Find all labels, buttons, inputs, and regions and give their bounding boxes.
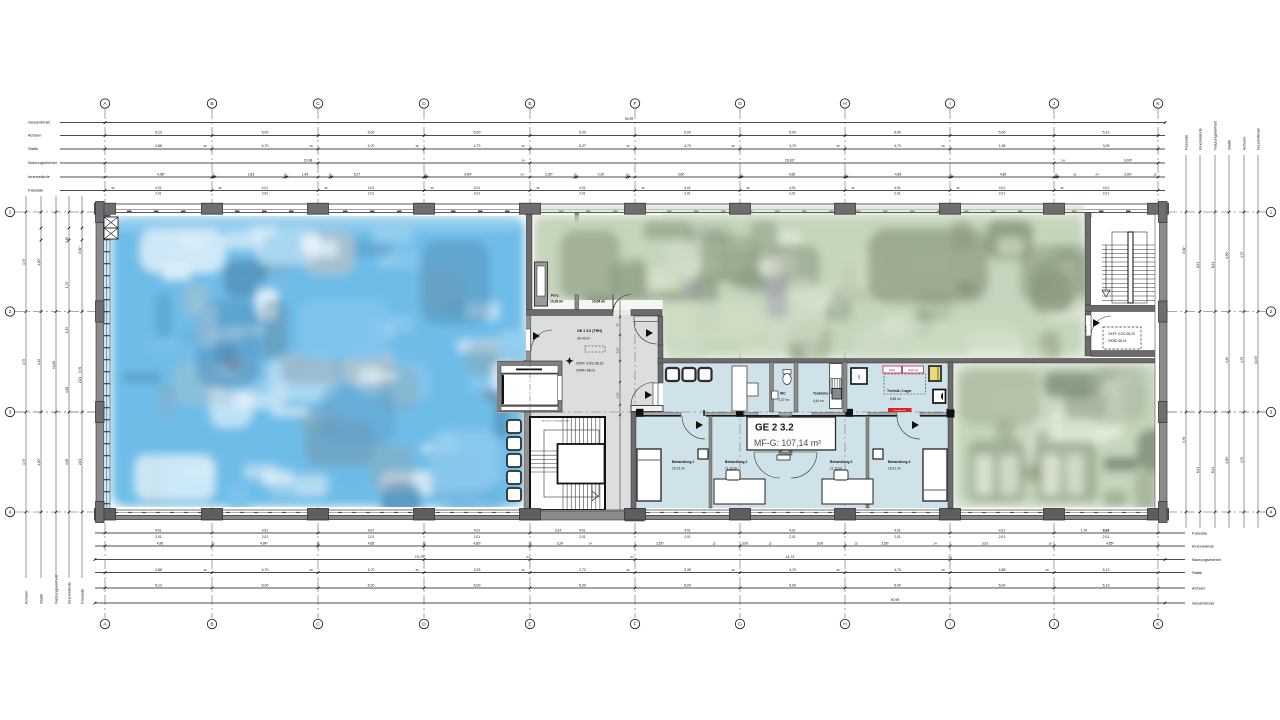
svg-text:D: D: [422, 622, 426, 628]
svg-text:4,45: 4,45: [37, 359, 41, 365]
svg-text:4,85⁵: 4,85⁵: [1106, 541, 1114, 545]
svg-text:14,73: 14,73: [786, 555, 795, 559]
svg-text:4,50⁵: 4,50⁵: [1225, 456, 1229, 464]
svg-text:4,70: 4,70: [368, 568, 375, 572]
svg-text:6,91: 6,91: [1196, 262, 1200, 268]
svg-text:3,05: 3,05: [1103, 144, 1110, 148]
svg-text:19,98: 19,98: [304, 158, 313, 162]
svg-text:E: E: [528, 622, 531, 628]
svg-text:4,85: 4,85: [1000, 172, 1007, 176]
svg-text:4,18: 4,18: [65, 387, 69, 393]
svg-text:4,85⁵: 4,85⁵: [473, 541, 481, 545]
svg-text:5,00: 5,00: [789, 131, 796, 135]
svg-text:4,01: 4,01: [155, 186, 162, 190]
svg-text:15: 15: [712, 541, 716, 545]
svg-text:MF-G: 107,14 m²: MF-G: 107,14 m²: [754, 438, 821, 448]
svg-text:Fassade: Fassade: [1192, 530, 1208, 535]
svg-text:Statik: Statik: [1226, 140, 1231, 150]
svg-text:B: B: [210, 101, 213, 107]
svg-text:4,79: 4,79: [22, 259, 26, 265]
svg-text:1,45: 1,45: [302, 172, 309, 176]
svg-text:D: D: [422, 101, 426, 107]
svg-text:2,01: 2,01: [894, 535, 901, 539]
svg-text:15: 15: [1048, 541, 1052, 545]
svg-text:30: 30: [309, 144, 313, 148]
svg-text:3,00: 3,00: [742, 541, 749, 545]
svg-text:30: 30: [521, 568, 525, 572]
svg-text:2,01: 2,01: [1103, 192, 1110, 196]
svg-text:4,85: 4,85: [895, 172, 902, 176]
svg-text:8,48 m²: 8,48 m²: [890, 397, 901, 401]
svg-text:C: C: [316, 622, 320, 628]
svg-text:3,24: 3,24: [557, 541, 564, 545]
svg-text:1: 1: [1270, 210, 1273, 216]
svg-text:1,76: 1,76: [1081, 528, 1088, 532]
svg-text:5,00: 5,00: [684, 131, 691, 135]
svg-text:4,50⁵: 4,50⁵: [37, 458, 41, 466]
svg-text:GE 2 3.0 (TRH): GE 2 3.0 (TRH): [577, 329, 603, 333]
svg-text:4,70: 4,70: [262, 568, 269, 572]
svg-text:Pers.: Pers.: [551, 294, 559, 298]
svg-text:1,58: 1,58: [999, 144, 1006, 148]
svg-text:2,83: 2,83: [248, 172, 255, 176]
svg-text:Behandlung 1: Behandlung 1: [672, 460, 695, 464]
svg-text:15: 15: [1153, 172, 1157, 176]
svg-text:2,01: 2,01: [78, 377, 82, 383]
svg-text:F: F: [634, 622, 637, 628]
svg-text:H: H: [843, 101, 847, 107]
svg-text:3,03⁵: 3,03⁵: [1124, 172, 1132, 176]
svg-text:Innenwände: Innenwände: [67, 581, 72, 604]
svg-text:6,91: 6,91: [1211, 262, 1215, 268]
svg-text:1,35: 1,35: [65, 327, 69, 333]
svg-text:11,12 m²: 11,12 m²: [725, 467, 737, 471]
svg-text:4,70: 4,70: [262, 144, 269, 148]
svg-text:24: 24: [588, 541, 592, 545]
svg-text:2,01: 2,01: [684, 535, 691, 539]
svg-text:99: 99: [957, 186, 960, 190]
svg-text:4,01: 4,01: [474, 528, 481, 532]
svg-text:4,96: 4,96: [157, 541, 164, 545]
svg-text:G: G: [738, 622, 742, 628]
svg-text:5,00: 5,00: [999, 583, 1006, 587]
svg-text:99: 99: [537, 186, 540, 190]
svg-text:5,13: 5,13: [1103, 568, 1110, 572]
svg-text:4,50⁵: 4,50⁵: [1225, 251, 1229, 259]
svg-text:Behandlung 2: Behandlung 2: [725, 460, 748, 464]
svg-text:4,70: 4,70: [789, 144, 796, 148]
svg-text:4,01: 4,01: [999, 186, 1006, 190]
svg-text:5,00: 5,00: [579, 583, 586, 587]
svg-text:5,00: 5,00: [684, 583, 691, 587]
svg-text:I: I: [949, 622, 950, 628]
svg-text:I: I: [949, 101, 950, 107]
svg-text:3,60: 3,60: [678, 172, 685, 176]
svg-text:GE 2 3.2: GE 2 3.2: [755, 423, 794, 434]
svg-text:3,76: 3,76: [1182, 437, 1186, 443]
svg-text:4,45: 4,45: [1225, 357, 1229, 363]
svg-text:2,37 m²: 2,37 m²: [779, 398, 790, 402]
svg-text:Nutzungseinheit: Nutzungseinheit: [54, 574, 59, 604]
svg-text:2,01: 2,01: [368, 192, 375, 196]
svg-text:2,30: 2,30: [598, 172, 605, 176]
svg-text:5,00: 5,00: [894, 583, 901, 587]
svg-text:2,72: 2,72: [579, 568, 586, 572]
svg-text:10,54 m²: 10,54 m²: [592, 300, 606, 304]
svg-text:2,01: 2,01: [579, 535, 586, 539]
svg-text:Nutzungseinheit: Nutzungseinheit: [1192, 557, 1222, 562]
svg-text:5,61⁵: 5,61⁵: [1182, 246, 1186, 254]
svg-text:Gesamtmaß: Gesamtmaß: [28, 120, 51, 125]
svg-text:11,12 m²: 11,12 m²: [830, 467, 842, 471]
svg-text:5,00: 5,00: [368, 131, 375, 135]
svg-text:4,70: 4,70: [789, 568, 796, 572]
svg-text:3,91: 3,91: [982, 541, 989, 545]
svg-text:Fassade: Fassade: [28, 188, 44, 193]
svg-text:24: 24: [526, 555, 530, 559]
svg-text:Statik: Statik: [39, 594, 44, 604]
svg-text:15,19 m²: 15,19 m²: [672, 467, 685, 471]
svg-text:4,01: 4,01: [684, 186, 691, 190]
svg-text:30: 30: [626, 568, 630, 572]
svg-text:5,00: 5,00: [368, 583, 375, 587]
svg-text:Heizung: Heizung: [908, 368, 919, 372]
svg-text:Innenwände: Innenwände: [28, 174, 51, 179]
svg-text:Nutzungseinheit: Nutzungseinheit: [28, 160, 58, 165]
svg-text:4,01: 4,01: [368, 186, 375, 190]
svg-text:2,01: 2,01: [1103, 535, 1110, 539]
svg-text:5,13: 5,13: [1103, 131, 1110, 135]
svg-text:2,30⁵: 2,30⁵: [545, 172, 553, 176]
svg-text:30: 30: [203, 568, 207, 572]
svg-text:4,50⁵: 4,50⁵: [37, 258, 41, 266]
svg-text:OKFF 3.OG 68,20: OKFF 3.OG 68,20: [1108, 332, 1135, 336]
svg-text:4,01: 4,01: [789, 528, 796, 532]
svg-text:5,27: 5,27: [354, 172, 361, 176]
svg-text:2,10⁵: 2,10⁵: [616, 347, 620, 353]
svg-text:99: 99: [747, 186, 750, 190]
svg-text:2,01: 2,01: [789, 192, 796, 196]
svg-text:Innenwände: Innenwände: [1192, 543, 1215, 548]
svg-text:5,00: 5,00: [262, 131, 269, 135]
svg-text:3,03⁵: 3,03⁵: [1124, 158, 1133, 162]
svg-text:4,98⁵: 4,98⁵: [157, 172, 165, 176]
svg-text:4,85: 4,85: [368, 541, 375, 545]
svg-text:15: 15: [625, 172, 629, 176]
svg-text:2,01: 2,01: [789, 535, 796, 539]
svg-text:1,13⁵: 1,13⁵: [616, 392, 620, 398]
svg-text:2,01: 2,01: [474, 192, 481, 196]
svg-text:30,42 m²: 30,42 m²: [577, 337, 591, 341]
svg-text:30: 30: [941, 568, 945, 572]
svg-text:4,01: 4,01: [155, 528, 162, 532]
svg-text:14,99: 14,99: [1254, 356, 1258, 364]
svg-text:15: 15: [768, 541, 772, 545]
svg-text:4,01: 4,01: [1103, 186, 1110, 190]
svg-text:2: 2: [1270, 309, 1273, 315]
svg-text:Behandlung 4: Behandlung 4: [888, 460, 911, 464]
svg-text:WC: WC: [780, 392, 786, 396]
svg-text:3,35: 3,35: [684, 568, 691, 572]
svg-text:15: 15: [573, 172, 577, 176]
svg-text:5,61⁵: 5,61⁵: [78, 246, 82, 254]
svg-text:S: S: [858, 375, 861, 380]
svg-text:Behandlung 3: Behandlung 3: [830, 460, 853, 464]
svg-text:4,01: 4,01: [368, 528, 375, 532]
svg-text:3: 3: [9, 410, 12, 416]
svg-text:24: 24: [520, 172, 524, 176]
svg-text:3,24: 3,24: [1103, 528, 1110, 532]
svg-text:Technik / Lager: Technik / Lager: [887, 389, 912, 393]
svg-text:4,01: 4,01: [684, 528, 691, 532]
svg-text:15: 15: [328, 172, 332, 176]
svg-text:5,00: 5,00: [894, 131, 901, 135]
svg-text:4,70: 4,70: [894, 568, 901, 572]
svg-text:99: 99: [852, 186, 855, 190]
svg-text:30: 30: [731, 568, 735, 572]
svg-text:4,01: 4,01: [789, 186, 796, 190]
svg-text:5,13: 5,13: [155, 583, 162, 587]
svg-text:3,25: 3,25: [474, 568, 481, 572]
svg-text:Achsen: Achsen: [1192, 585, 1205, 590]
svg-text:4,01: 4,01: [579, 528, 586, 532]
svg-text:4: 4: [1270, 510, 1273, 516]
svg-text:2,01: 2,01: [474, 535, 481, 539]
svg-text:4,01: 4,01: [474, 186, 481, 190]
svg-text:4,75: 4,75: [1240, 357, 1244, 363]
svg-text:OKRD 68,01: OKRD 68,01: [576, 369, 595, 373]
svg-text:5,00: 5,00: [579, 131, 586, 135]
svg-text:G: G: [738, 101, 742, 107]
svg-text:OKRD 68,01: OKRD 68,01: [1108, 339, 1127, 343]
svg-text:30: 30: [731, 144, 735, 148]
svg-text:4,90⁵: 4,90⁵: [464, 172, 472, 176]
svg-text:30: 30: [309, 568, 313, 572]
svg-text:W 07/5st 17,5/28 4M 27 8M: W 07/5st 17,5/28 4M 27 8M: [542, 420, 569, 423]
svg-text:2,01: 2,01: [78, 459, 82, 465]
svg-text:5,13: 5,13: [155, 131, 162, 135]
svg-text:4,79: 4,79: [1240, 457, 1244, 463]
svg-text:99: 99: [1061, 186, 1064, 190]
svg-text:24: 24: [1095, 172, 1099, 176]
svg-text:2,01: 2,01: [579, 192, 586, 196]
svg-text:4: 4: [9, 510, 12, 516]
svg-text:4,70: 4,70: [368, 144, 375, 148]
svg-text:14,06: 14,06: [52, 361, 56, 369]
svg-text:4,01: 4,01: [262, 528, 269, 532]
svg-text:30: 30: [415, 144, 419, 148]
svg-text:4,70: 4,70: [684, 144, 691, 148]
svg-text:Brandschutz: Brandschutz: [894, 409, 906, 412]
svg-text:Achsen: Achsen: [1241, 137, 1246, 150]
svg-text:2: 2: [9, 309, 12, 315]
svg-text:99: 99: [325, 186, 328, 190]
svg-text:Kälte: Kälte: [889, 368, 896, 372]
svg-text:30: 30: [941, 144, 945, 148]
svg-text:Gesamtmaß: Gesamtmaß: [1255, 127, 1260, 150]
svg-text:24: 24: [933, 541, 937, 545]
svg-text:F: F: [634, 101, 637, 107]
svg-text:Fassade: Fassade: [1183, 134, 1188, 150]
svg-text:3: 3: [1270, 410, 1273, 416]
svg-text:30: 30: [836, 568, 840, 572]
svg-text:Achsen: Achsen: [28, 133, 41, 138]
svg-text:4,88: 4,88: [155, 568, 162, 572]
svg-text:4,88: 4,88: [999, 568, 1006, 572]
svg-text:24: 24: [521, 159, 525, 163]
svg-text:4,44 m²: 4,44 m²: [813, 399, 824, 403]
svg-text:30: 30: [836, 144, 840, 148]
svg-text:99: 99: [642, 186, 645, 190]
svg-text:Statik: Statik: [28, 146, 38, 151]
svg-text:6,91: 6,91: [1196, 467, 1200, 473]
svg-text:3,10: 3,10: [65, 237, 69, 243]
svg-text:30: 30: [521, 144, 525, 148]
svg-text:Fassade: Fassade: [80, 588, 85, 604]
svg-text:4,01: 4,01: [262, 186, 269, 190]
svg-text:B: B: [210, 622, 213, 628]
svg-text:OKFF 3.OG 68,20: OKFF 3.OG 68,20: [576, 362, 604, 366]
svg-text:4,01: 4,01: [894, 186, 901, 190]
svg-text:4,85: 4,85: [789, 172, 796, 176]
svg-text:3,00: 3,00: [817, 541, 824, 545]
svg-text:4,01: 4,01: [894, 528, 901, 532]
svg-text:15: 15: [283, 172, 287, 176]
svg-text:4,75: 4,75: [22, 359, 26, 365]
svg-text:90,99: 90,99: [891, 598, 900, 602]
svg-text:26,61⁵: 26,61⁵: [785, 158, 796, 162]
svg-text:2,01: 2,01: [155, 535, 162, 539]
svg-text:2,01: 2,01: [368, 535, 375, 539]
svg-text:Gesamtmaß: Gesamtmaß: [1192, 600, 1215, 605]
svg-text:4,01: 4,01: [999, 528, 1006, 532]
svg-text:24: 24: [1061, 159, 1065, 163]
svg-text:2,01: 2,01: [262, 192, 269, 196]
svg-text:3,76: 3,76: [78, 367, 82, 373]
svg-text:3,53⁵: 3,53⁵: [881, 541, 889, 545]
svg-text:Teeküche: Teeküche: [813, 392, 829, 396]
svg-text:Statik: Statik: [1192, 570, 1202, 575]
svg-text:1: 1: [9, 210, 12, 216]
svg-text:2,01: 2,01: [684, 192, 691, 196]
svg-text:4,70: 4,70: [894, 144, 901, 148]
svg-text:15: 15: [854, 541, 858, 545]
svg-text:5,00: 5,00: [999, 131, 1006, 135]
svg-text:4,73: 4,73: [474, 144, 481, 148]
svg-text:30: 30: [1045, 568, 1049, 572]
svg-text:2,01: 2,01: [262, 535, 269, 539]
svg-text:1,26/1,97: 1,26/1,97: [1086, 325, 1088, 335]
svg-text:99: 99: [219, 186, 222, 190]
svg-text:91: 91: [1073, 172, 1077, 176]
svg-text:4,88: 4,88: [155, 144, 162, 148]
svg-text:Achsen: Achsen: [24, 591, 29, 604]
svg-text:C: C: [316, 101, 320, 107]
svg-text:Innenwände: Innenwände: [1197, 127, 1202, 150]
svg-text:4,79: 4,79: [22, 459, 26, 465]
svg-text:30: 30: [415, 568, 419, 572]
svg-text:2,01: 2,01: [999, 535, 1006, 539]
svg-text:6,91: 6,91: [1211, 467, 1215, 473]
svg-text:1,75: 1,75: [65, 282, 69, 288]
svg-text:5,00: 5,00: [789, 583, 796, 587]
svg-text:24: 24: [630, 555, 634, 559]
svg-text:90,99: 90,99: [625, 117, 634, 121]
svg-text:99: 99: [112, 186, 115, 190]
svg-text:30: 30: [203, 144, 207, 148]
svg-text:16,01 m²: 16,01 m²: [888, 467, 901, 471]
svg-text:E: E: [528, 101, 531, 107]
svg-text:2,01: 2,01: [155, 192, 162, 196]
svg-text:H: H: [843, 622, 847, 628]
svg-text:4,84⁵: 4,84⁵: [260, 541, 268, 545]
svg-text:4,79: 4,79: [1240, 252, 1244, 258]
svg-text:Nutzungseinheit: Nutzungseinheit: [1212, 120, 1217, 150]
svg-text:5,13: 5,13: [1103, 583, 1110, 587]
svg-text:99: 99: [431, 186, 434, 190]
svg-text:2,01: 2,01: [999, 192, 1006, 196]
svg-text:2,01: 2,01: [894, 192, 901, 196]
svg-text:5,00: 5,00: [262, 583, 269, 587]
svg-text:5,27: 5,27: [579, 144, 586, 148]
svg-text:4,58: 4,58: [65, 459, 69, 465]
svg-text:3,24: 3,24: [555, 528, 562, 532]
svg-text:30: 30: [626, 144, 630, 148]
svg-text:5,00: 5,00: [474, 583, 481, 587]
svg-text:3,52⁵: 3,52⁵: [656, 541, 664, 545]
svg-text:10,29 m²: 10,29 m²: [550, 300, 564, 304]
svg-text:4,01: 4,01: [579, 186, 586, 190]
svg-text:5,00: 5,00: [474, 131, 481, 135]
